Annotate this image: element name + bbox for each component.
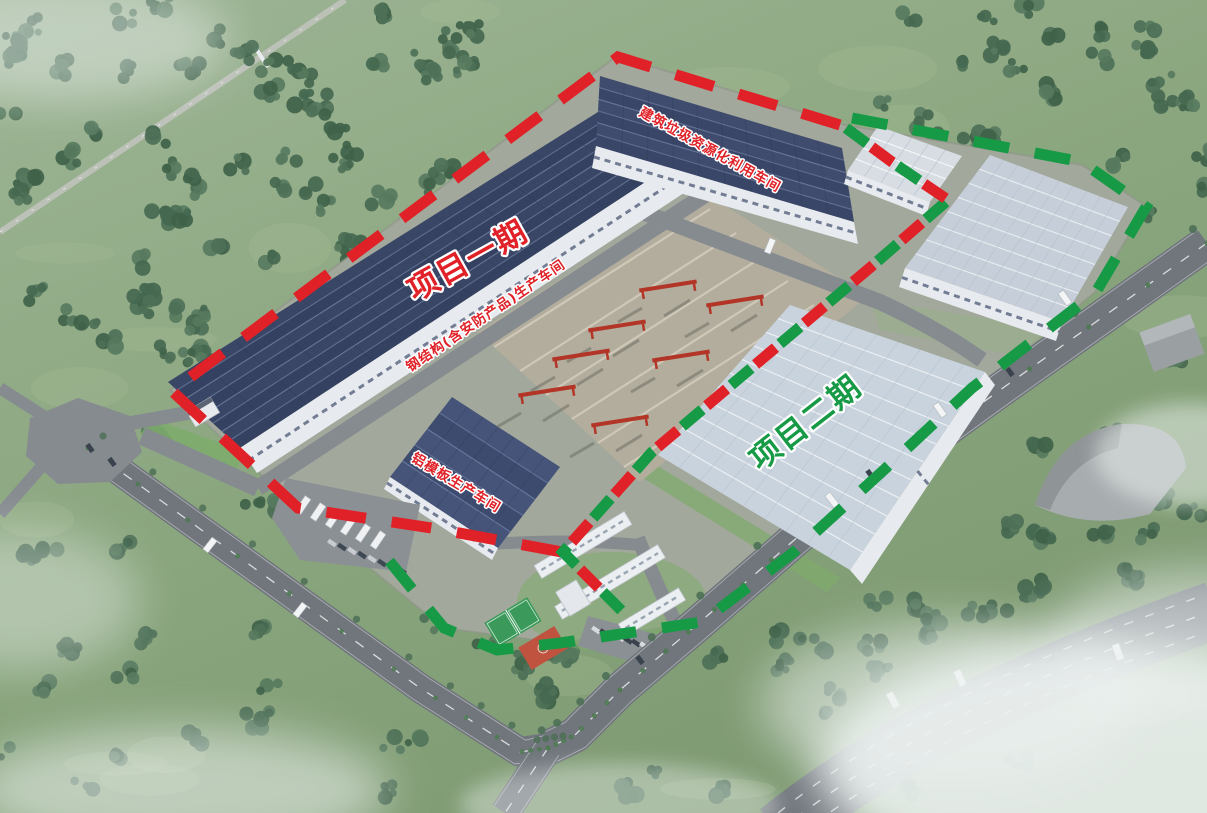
aerial-rendering: 项目一期 钢结构(含安防产品)生产车间 建筑垃圾资源化利用车间 铝模板生产车间 … (0, 0, 1207, 813)
scene-layer (0, 0, 1207, 813)
site-plan-canvas: 项目一期 钢结构(含安防产品)生产车间 建筑垃圾资源化利用车间 铝模板生产车间 … (0, 0, 1207, 813)
